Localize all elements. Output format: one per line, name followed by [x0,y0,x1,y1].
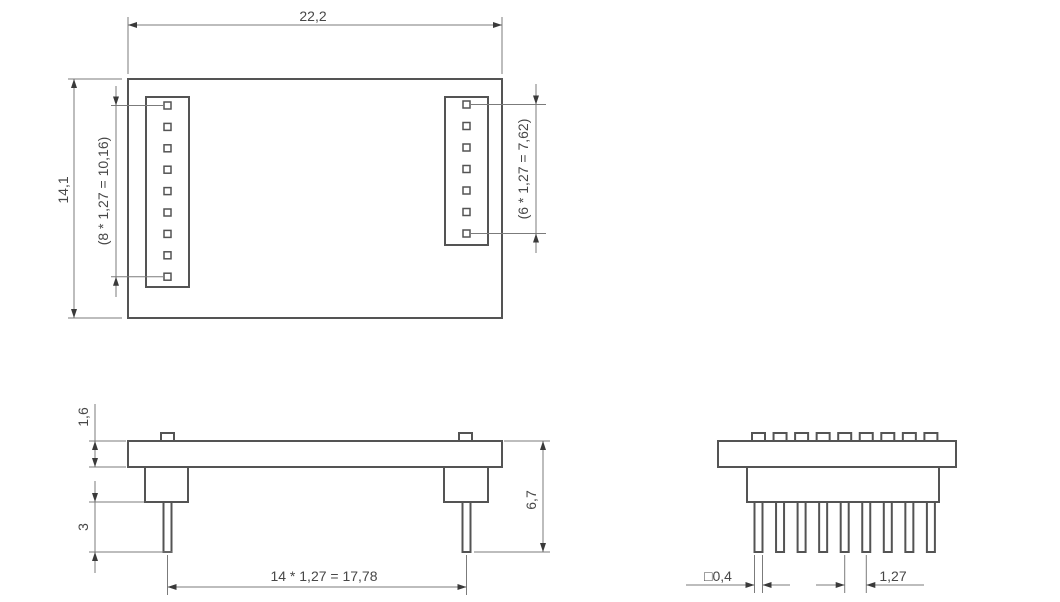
pad-square [164,123,171,130]
top-view: 22,2 14,1 (8 * 1,27 = 10,16) [55,8,546,318]
dim-pin-protrusion: 3 [75,481,172,573]
pin-top-bump [795,433,808,441]
arrowhead [533,96,539,105]
arrowhead [92,458,98,467]
dim-right-pin-span-label: (6 * 1,27 = 7,62) [515,119,531,220]
dim-pin-pitch-label: 1,27 [879,568,906,584]
board-outline-front-view [128,441,502,467]
arrowhead [168,584,177,590]
pin-top-bump [774,433,787,441]
left-pin-top-bump [161,433,174,441]
pin [905,502,913,552]
pad-square [463,101,470,108]
arrowhead [746,582,755,588]
pin [927,502,935,552]
arrowhead [866,582,875,588]
side-pin-top-bumps [752,433,937,441]
arrowhead [92,441,98,450]
arrowhead [71,79,77,88]
right-pin [463,502,471,552]
dim-board-thickness: 1,6 [75,404,126,467]
arrowhead [71,309,77,318]
pad-square [463,144,470,151]
dim-pin-square-label: □0,4 [704,568,732,584]
dim-pin-protrusion-label: 3 [75,523,91,531]
arrowhead [533,234,539,243]
pin [776,502,784,552]
side-pins [755,502,935,552]
arrowhead [540,441,546,450]
right-pin-top-bump [459,433,472,441]
pad-square [463,230,470,237]
arrowhead [540,543,546,552]
pin-top-bump [860,433,873,441]
arrowhead [92,493,98,502]
left-header-housing [145,467,188,502]
dim-overall-height-label: 6,7 [523,490,539,510]
pad-square [164,102,171,109]
right-header-housing [444,467,488,502]
pad-square [164,188,171,195]
side-view: □0,4 1,27 [686,433,956,593]
arrowhead [128,22,137,28]
arrowhead [763,582,772,588]
dim-left-pin-span-label: (8 * 1,27 = 10,16) [95,137,111,246]
left-pin [164,502,172,552]
pin [755,502,763,552]
dim-pin-row-span-label: 14 * 1,27 = 17,78 [270,568,377,584]
pin [841,502,849,552]
pin [884,502,892,552]
dim-board-width-label: 22,2 [299,8,326,24]
dimension-drawing: 22,2 14,1 (8 * 1,27 = 10,16) [0,0,1060,602]
pin [862,502,870,552]
pin-top-bump [924,433,937,441]
dim-pin-pitch: 1,27 [816,555,924,593]
technical-drawing-page: 22,2 14,1 (8 * 1,27 = 10,16) [0,0,1060,602]
pin-top-bump [838,433,851,441]
pad-square [164,145,171,152]
header-housing-side-view [747,467,939,502]
arrowhead [458,584,467,590]
arrowhead [113,97,119,106]
dim-board-thickness-label: 1,6 [75,407,91,427]
pin [798,502,806,552]
pad-square [463,187,470,194]
arrowhead [836,582,845,588]
dim-board-width: 22,2 [128,8,502,74]
pad-square [463,166,470,173]
arrowhead [92,552,98,561]
dim-board-height-label: 14,1 [55,176,71,203]
left-header-pads [164,102,171,280]
dim-pin-row-span: 14 * 1,27 = 17,78 [168,555,467,595]
pin-top-bump [817,433,830,441]
pad-square [463,209,470,216]
pad-square [164,209,171,216]
front-view: 1,6 3 6,7 14 * 1,27 = 17,78 [75,404,550,595]
pad-square [463,123,470,130]
dim-pin-square: □0,4 [686,555,790,593]
pin [819,502,827,552]
arrowhead [493,22,502,28]
pin-top-bump [752,433,765,441]
dim-board-height: 14,1 [55,79,122,318]
arrowhead [113,277,119,286]
pad-square [164,166,171,173]
pad-square [164,230,171,237]
pad-square [164,252,171,259]
pin-top-bump [903,433,916,441]
pad-square [164,273,171,280]
board-outline-side-view [718,441,956,467]
pin-top-bump [881,433,894,441]
